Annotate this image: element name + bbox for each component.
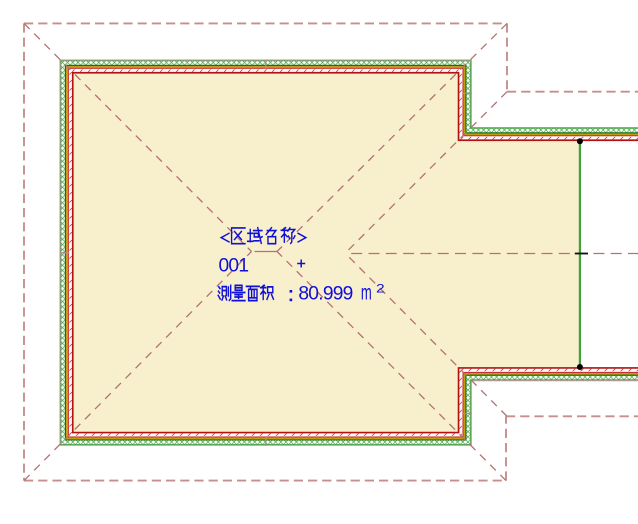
svg-text:80.999: 80.999: [298, 283, 352, 304]
svg-text:001: 001: [219, 255, 249, 276]
svg-text:2: 2: [376, 281, 385, 295]
svg-text:m: m: [361, 280, 372, 304]
